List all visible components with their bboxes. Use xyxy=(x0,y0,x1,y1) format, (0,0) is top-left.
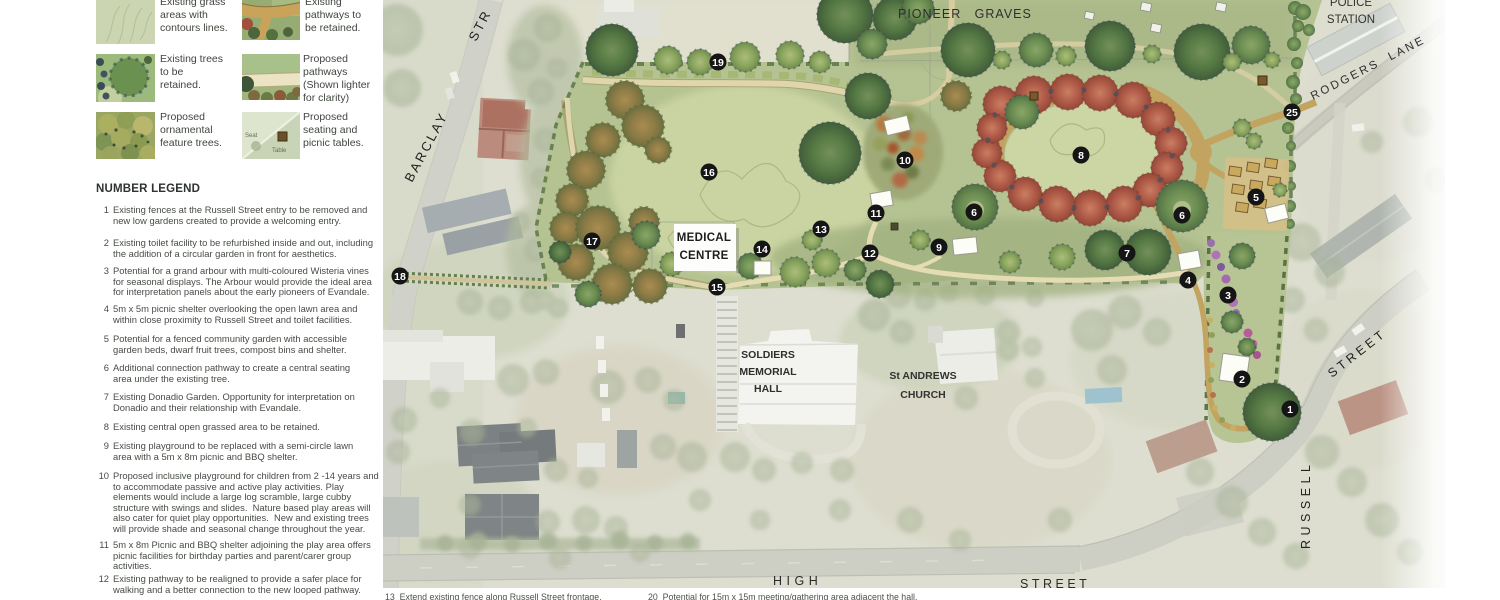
svg-text:13: 13 xyxy=(815,224,827,236)
svg-text:10: 10 xyxy=(899,155,911,167)
svg-text:15: 15 xyxy=(711,282,723,294)
svg-text:RUSSELL: RUSSELL xyxy=(1299,461,1313,549)
svg-text:8: 8 xyxy=(1078,150,1084,162)
svg-text:1: 1 xyxy=(1287,404,1293,416)
svg-text:17: 17 xyxy=(586,236,598,248)
svg-text:6: 6 xyxy=(971,207,977,219)
svg-text:9: 9 xyxy=(936,242,942,254)
svg-text:6: 6 xyxy=(1179,210,1185,222)
svg-text:Seat: Seat xyxy=(245,133,258,139)
svg-text:CENTRE: CENTRE xyxy=(679,250,728,262)
svg-text:5: 5 xyxy=(1253,192,1259,204)
svg-text:2: 2 xyxy=(1239,374,1245,386)
svg-text:Table: Table xyxy=(272,148,287,154)
svg-text:SOLDIERS: SOLDIERS xyxy=(741,349,795,361)
svg-text:18: 18 xyxy=(394,271,406,283)
svg-text:12: 12 xyxy=(864,248,876,260)
svg-text:7: 7 xyxy=(1124,248,1130,260)
svg-text:14: 14 xyxy=(756,244,768,256)
svg-text:St ANDREWS: St ANDREWS xyxy=(889,370,956,382)
svg-text:4: 4 xyxy=(1185,275,1191,287)
svg-text:CHURCH: CHURCH xyxy=(900,389,946,401)
svg-text:16: 16 xyxy=(703,167,715,179)
svg-text:STATION: STATION xyxy=(1327,14,1375,26)
svg-text:POLICE: POLICE xyxy=(1330,0,1373,9)
svg-text:3: 3 xyxy=(1225,290,1231,302)
svg-text:HIGH: HIGH xyxy=(773,574,822,588)
svg-text:MEMORIAL: MEMORIAL xyxy=(739,366,797,378)
svg-text:25: 25 xyxy=(1286,107,1298,119)
svg-text:STREET: STREET xyxy=(1020,577,1090,591)
svg-text:PIONEER GRAVES: PIONEER GRAVES xyxy=(898,7,1032,21)
svg-text:MEDICAL: MEDICAL xyxy=(677,232,732,244)
svg-text:HALL: HALL xyxy=(754,383,783,395)
svg-text:11: 11 xyxy=(870,208,881,220)
svg-text:19: 19 xyxy=(712,57,724,69)
